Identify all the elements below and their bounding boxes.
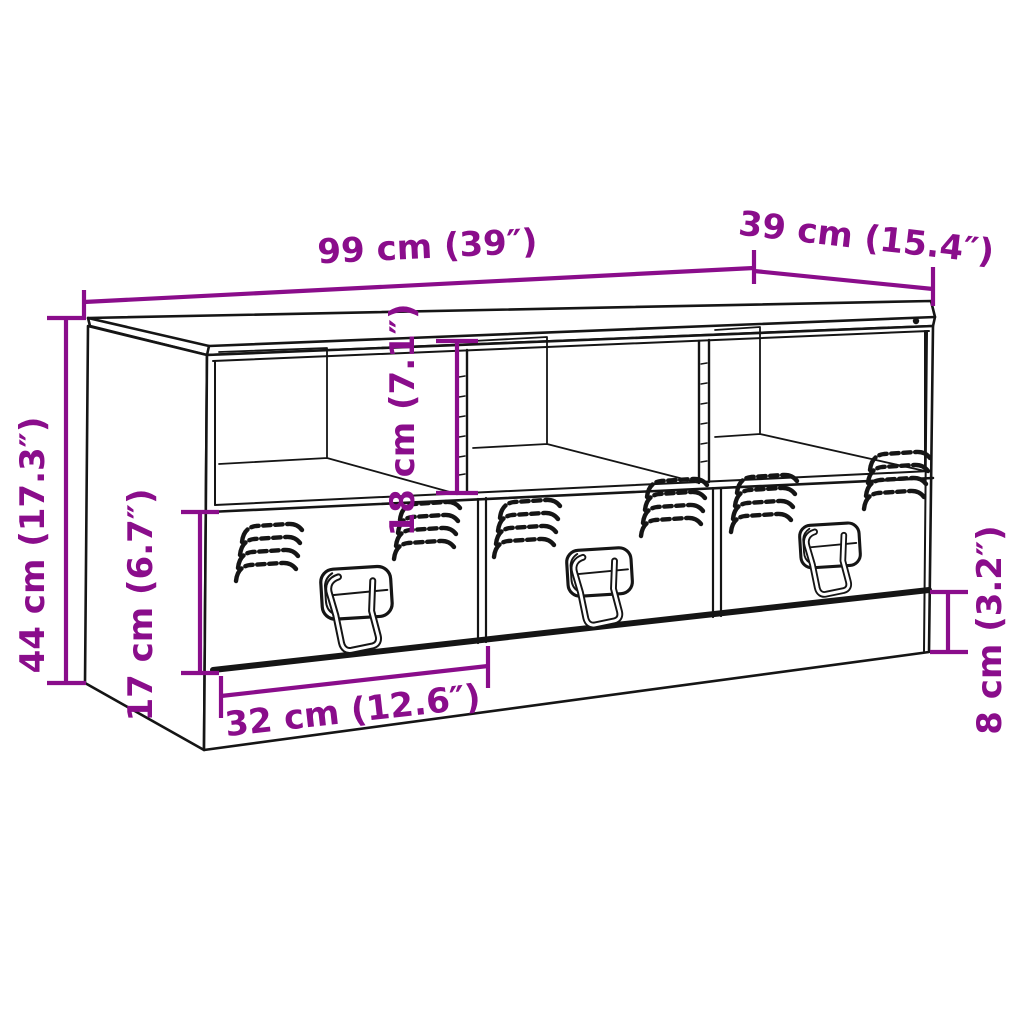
dimension-depth-line (754, 267, 933, 306)
compartment-height-label: 18 cm (7.1″) (383, 303, 423, 536)
furniture-dimension-diagram: 99 cm (39″) 39 cm (15.4″) 44 cm (17.3″) … (0, 0, 1024, 1024)
diagram-canvas: 99 cm (39″) 39 cm (15.4″) 44 cm (17.3″) … (0, 0, 1024, 1024)
tv-stand-drawing (85, 301, 935, 750)
depth-label: 39 cm (15.4″) (736, 204, 996, 273)
dimension-plinth-height-line (930, 592, 968, 652)
screw-dot (913, 318, 919, 324)
drawer-front-height-label: 17 cm (6.7″) (121, 488, 161, 721)
plinth-height-label: 8 cm (3.2″) (970, 525, 1010, 734)
height-label: 44 cm (17.3″) (13, 417, 53, 674)
width-label: 99 cm (39″) (317, 222, 539, 273)
